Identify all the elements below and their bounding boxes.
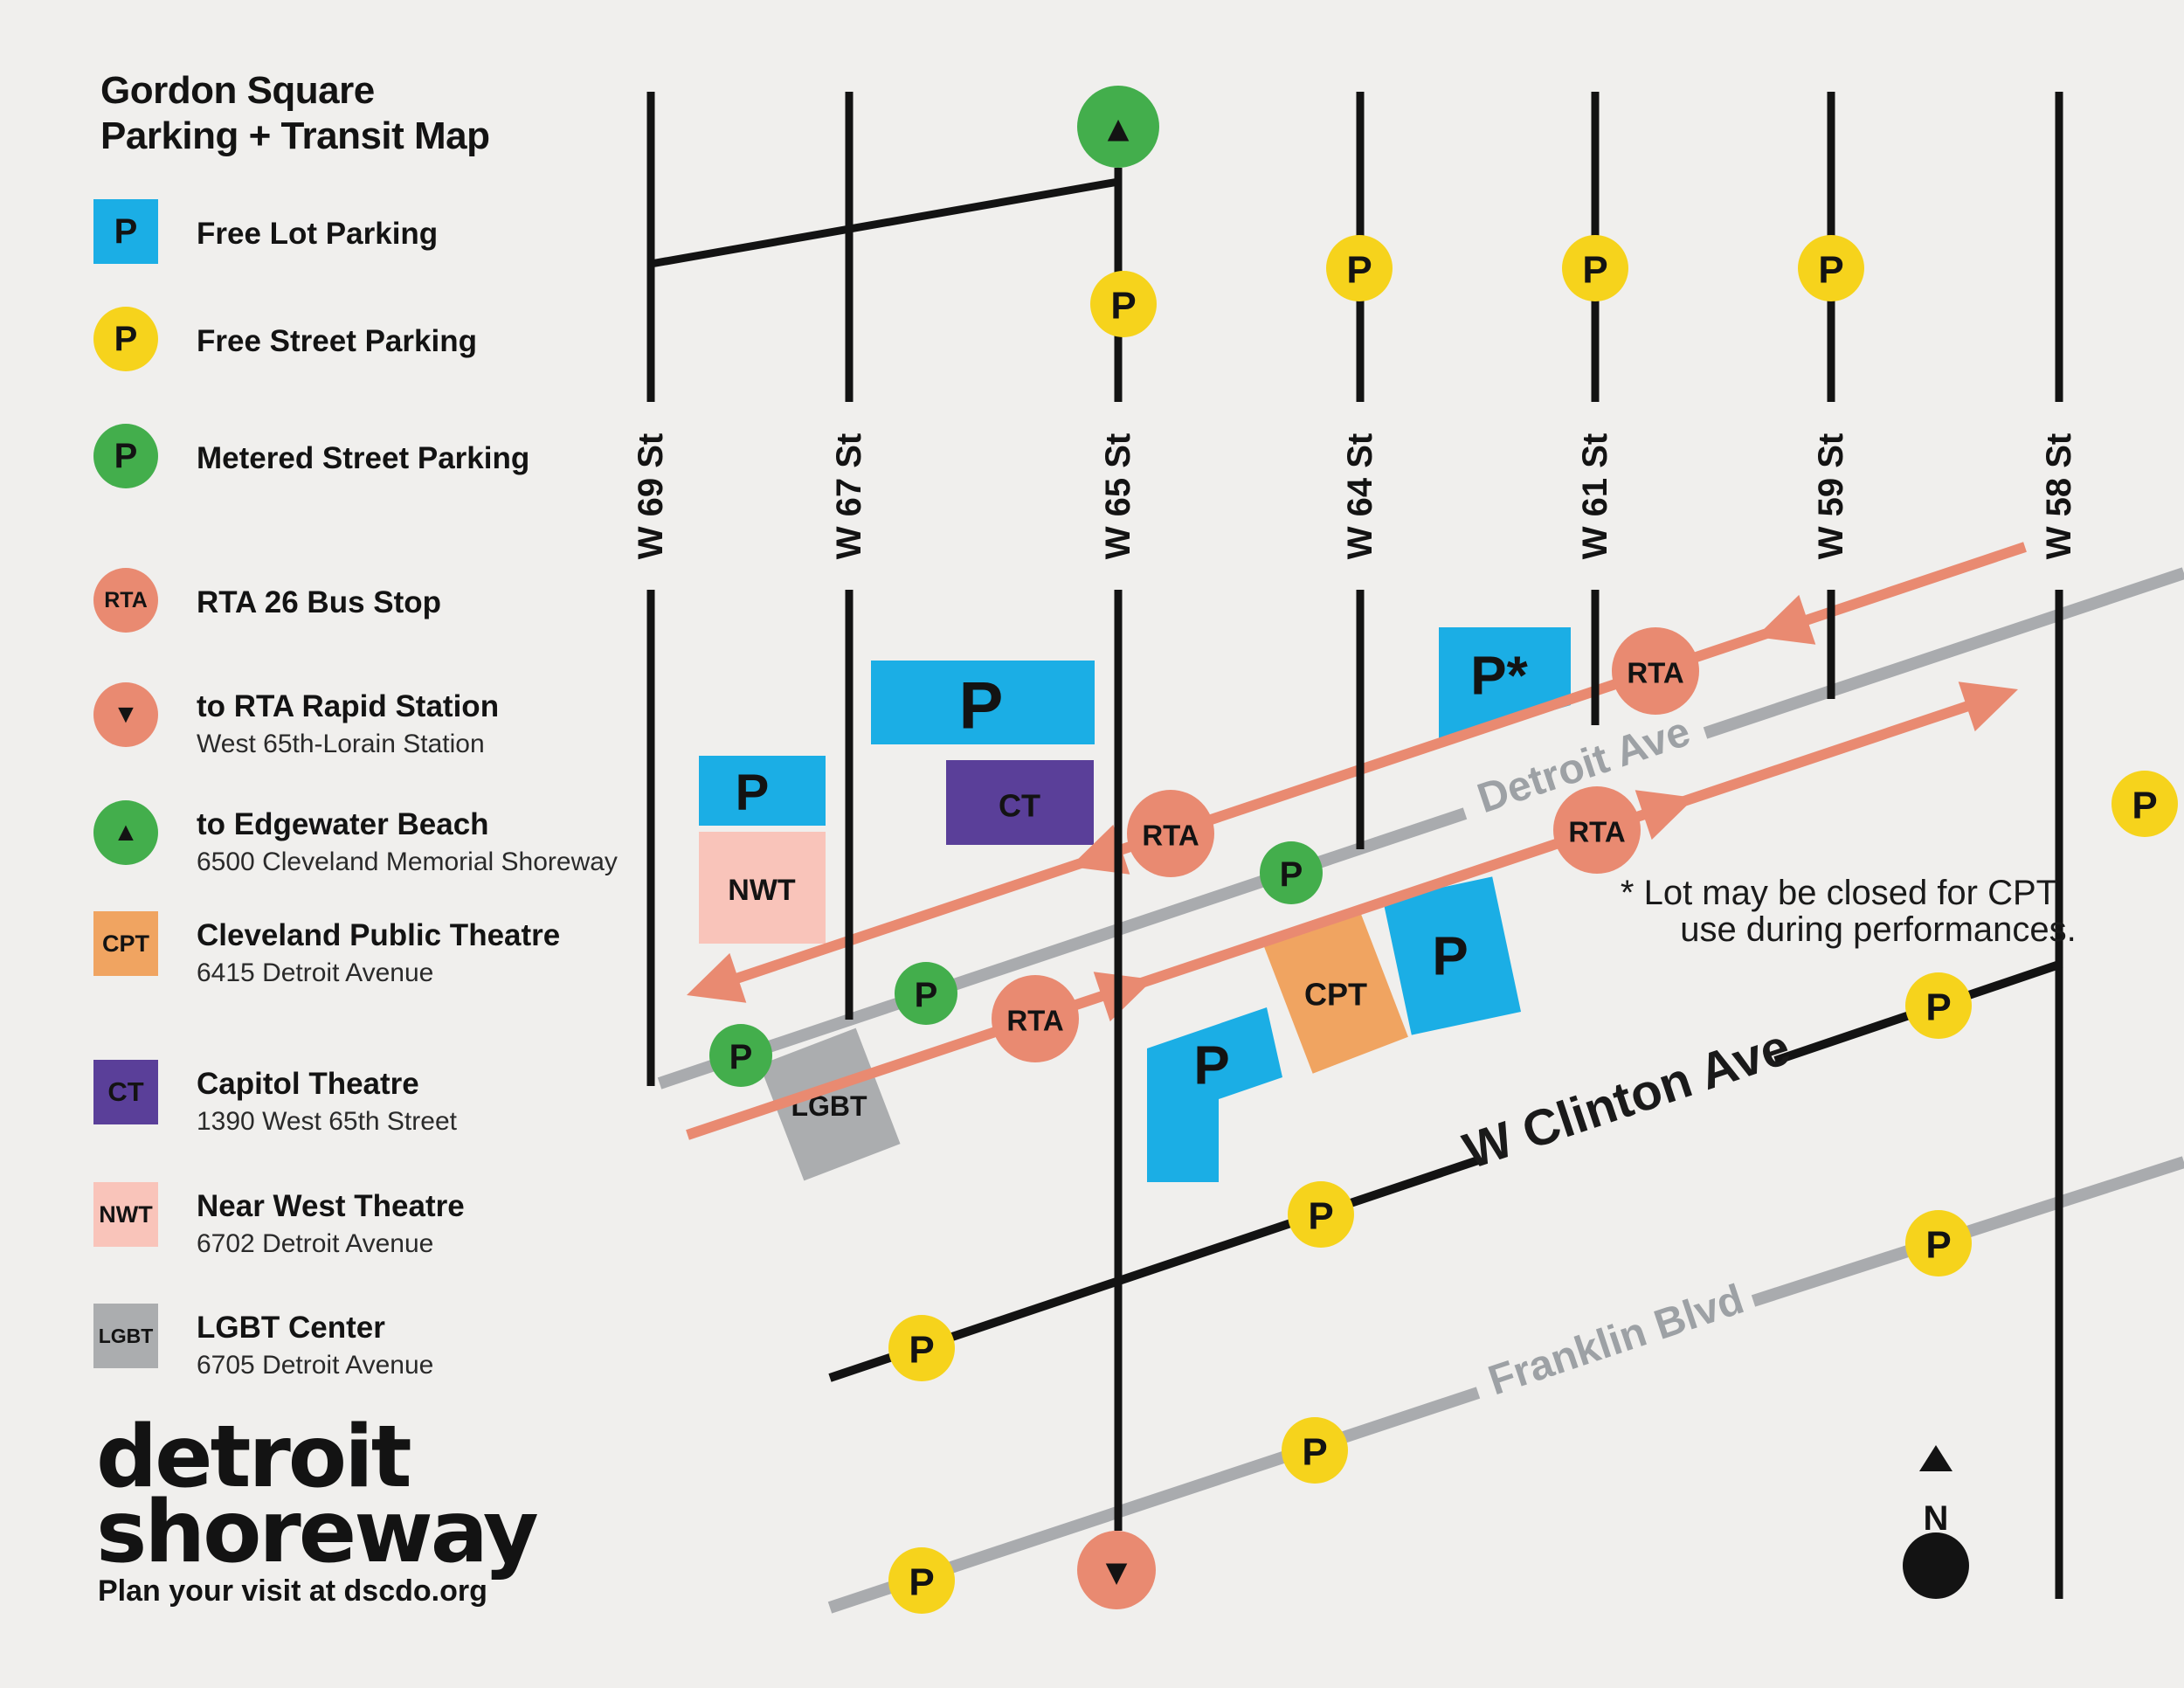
legend-item-to-edgewater-beach: ▲to Edgewater Beach6500 Cleveland Memori…: [93, 800, 635, 870]
legend-item-rta-26-bus-stop: RTARTA 26 Bus Stop: [93, 568, 635, 638]
w-clinton-ave-label: W Clinton Ave: [1456, 1018, 1796, 1180]
free-lot-p-star-label: P*: [1470, 647, 1528, 707]
metered-parking-detroit-east-glyph: P: [1280, 855, 1303, 894]
free-street-parking-clinton-west-glyph: P: [909, 1329, 934, 1372]
legend-item-to-rta-rapid-station: ▼to RTA Rapid StationWest 65th-Lorain St…: [93, 682, 635, 752]
rta-26-westbound-arrow-icon: [687, 953, 746, 1003]
free-street-parking-w61-north-glyph: P: [1582, 249, 1607, 292]
free-street-parking-w59-north-glyph: P: [1818, 249, 1843, 292]
north-arrow-icon: [1919, 1445, 1952, 1471]
rta-rapid-station-marker-glyph: ▼: [1098, 1552, 1135, 1593]
legend-triangle-icon: ▲: [93, 800, 158, 865]
cpt-lot-note-line2: use during performances.: [1680, 910, 2077, 949]
legend-item-sublabel: 1390 West 65th Street: [197, 1107, 457, 1137]
w-64-st-label: W 64 St: [1341, 433, 1379, 559]
legend-item-sublabel: 6702 Detroit Avenue: [197, 1229, 433, 1259]
free-street-parking-clinton-mid-glyph: P: [1308, 1195, 1333, 1238]
legend-triangle-icon: ▼: [93, 682, 158, 747]
w-61-st-label: W 61 St: [1576, 433, 1614, 559]
w-69-st-label: W 69 St: [632, 433, 670, 559]
free-street-parking-w64-north-glyph: P: [1346, 249, 1372, 292]
metered-parking-detroit-mid-glyph: P: [915, 976, 938, 1014]
rta-26-eastbound-arrow-icon: [1635, 790, 1695, 840]
page-title-line1: Gordon Square: [100, 68, 490, 114]
north-label: N: [1924, 1499, 1949, 1538]
franklin-blvd-label: Franklin Blvd: [1482, 1276, 1749, 1405]
free-street-parking-franklin-west-glyph: P: [909, 1561, 934, 1604]
legend-item-near-west-theatre: NWTNear West Theatre6702 Detroit Avenue: [93, 1182, 635, 1252]
free-street-parking-w58-glyph: P: [2132, 785, 2157, 827]
near-west-theatre-building-label: NWT: [728, 874, 796, 907]
edgewater-beach-marker-glyph: ▲: [1100, 108, 1137, 149]
page-title-line2: Parking + Transit Map: [100, 114, 490, 159]
legend-p-icon: P: [93, 199, 158, 264]
rta-26-eastbound-arrow-icon: [1094, 972, 1153, 1021]
w-58-st-label: W 58 St: [2040, 433, 2078, 559]
legend-item-metered-street-parking: PMetered Street Parking: [93, 424, 635, 494]
free-lot-p-detroit-north-label: P: [959, 669, 1004, 744]
legend-item-free-lot-parking: PFree Lot Parking: [93, 199, 635, 269]
legend-cpt-icon: CPT: [93, 911, 158, 976]
w-67-st-label: W 67 St: [830, 433, 868, 559]
free-street-parking-w65-north-glyph: P: [1110, 285, 1136, 328]
rta-bus-stop-east-upper-glyph: RTA: [1627, 657, 1683, 689]
cpt-building-label: CPT: [1304, 977, 1367, 1013]
legend-item-label: Capitol Theatre: [197, 1067, 419, 1102]
north-circle-icon: [1903, 1532, 1969, 1599]
legend-item-label: Metered Street Parking: [197, 441, 529, 476]
w-65-st-label: W 65 St: [1099, 433, 1137, 559]
free-street-parking-clinton-east-glyph: P: [1925, 986, 1951, 1029]
rta-bus-stop-w65-glyph: RTA: [1142, 820, 1199, 852]
legend-item-label: Cleveland Public Theatre: [197, 918, 560, 953]
legend-item-capitol-theatre: CTCapitol Theatre1390 West 65th Street: [93, 1060, 635, 1130]
rta-26-eastbound-arrow-icon: [1959, 681, 2018, 731]
legend-ct-icon: CT: [93, 1060, 158, 1124]
free-lot-p-cpt-east-label: P: [1432, 927, 1468, 987]
rta-26-westbound-arrow-icon: [1756, 595, 1815, 645]
rta-bus-stop-lower-glyph: RTA: [1006, 1005, 1063, 1037]
legend-p-icon: P: [93, 307, 158, 371]
free-lot-p-w69-label: P: [736, 764, 770, 821]
logo-line2: shoreway: [96, 1495, 536, 1570]
legend-rta-icon: RTA: [93, 568, 158, 633]
legend-nwt-icon: NWT: [93, 1182, 158, 1247]
legend-item-sublabel: 6705 Detroit Avenue: [197, 1351, 433, 1380]
legend-lgbt-icon: LGBT: [93, 1304, 158, 1368]
legend-item-cleveland-public-theatre: CPTCleveland Public Theatre6415 Detroit …: [93, 911, 635, 981]
gordon-square-map-page: PCTPNWTLGBTCPTP*PPDetroit AveW Clinton A…: [0, 0, 2184, 1688]
logo-tagline: Plan your visit at dscdo.org: [98, 1574, 487, 1608]
legend-item-label: Free Street Parking: [197, 324, 477, 359]
free-street-parking-franklin-east-glyph: P: [1925, 1224, 1951, 1267]
legend-item-sublabel: West 65th-Lorain Station: [197, 730, 485, 759]
legend-item-label: RTA 26 Bus Stop: [197, 585, 441, 620]
legend-item-label: to Edgewater Beach: [197, 807, 489, 842]
w-59-st-label: W 59 St: [1812, 433, 1850, 559]
cpt-lot-note-line1: * Lot may be closed for CPT: [1621, 874, 2057, 912]
legend-item-sublabel: 6500 Cleveland Memorial Shoreway: [197, 847, 618, 877]
legend-item-free-street-parking: PFree Street Parking: [93, 307, 635, 377]
legend-item-label: to RTA Rapid Station: [197, 689, 499, 724]
legend-item-label: Near West Theatre: [197, 1189, 465, 1224]
free-street-parking-franklin-mid-glyph: P: [1302, 1431, 1327, 1474]
capitol-theatre-building-label: CT: [999, 788, 1040, 824]
page-title: Gordon Square Parking + Transit Map: [100, 68, 490, 159]
legend-item-label: Free Lot Parking: [197, 217, 438, 252]
legend-item-sublabel: 6415 Detroit Avenue: [197, 958, 433, 988]
shoreway-connector-road: [651, 182, 1118, 264]
metered-parking-detroit-west-glyph: P: [729, 1038, 753, 1076]
legend-p-icon: P: [93, 424, 158, 488]
detroit-shoreway-logo: detroit shoreway: [96, 1420, 536, 1570]
legend-item-lgbt-center: LGBTLGBT Center6705 Detroit Avenue: [93, 1304, 635, 1373]
rta-bus-stop-east-lower-glyph: RTA: [1568, 816, 1625, 848]
free-lot-p-l-shape-label: P: [1193, 1036, 1229, 1097]
legend-item-label: LGBT Center: [197, 1311, 385, 1346]
